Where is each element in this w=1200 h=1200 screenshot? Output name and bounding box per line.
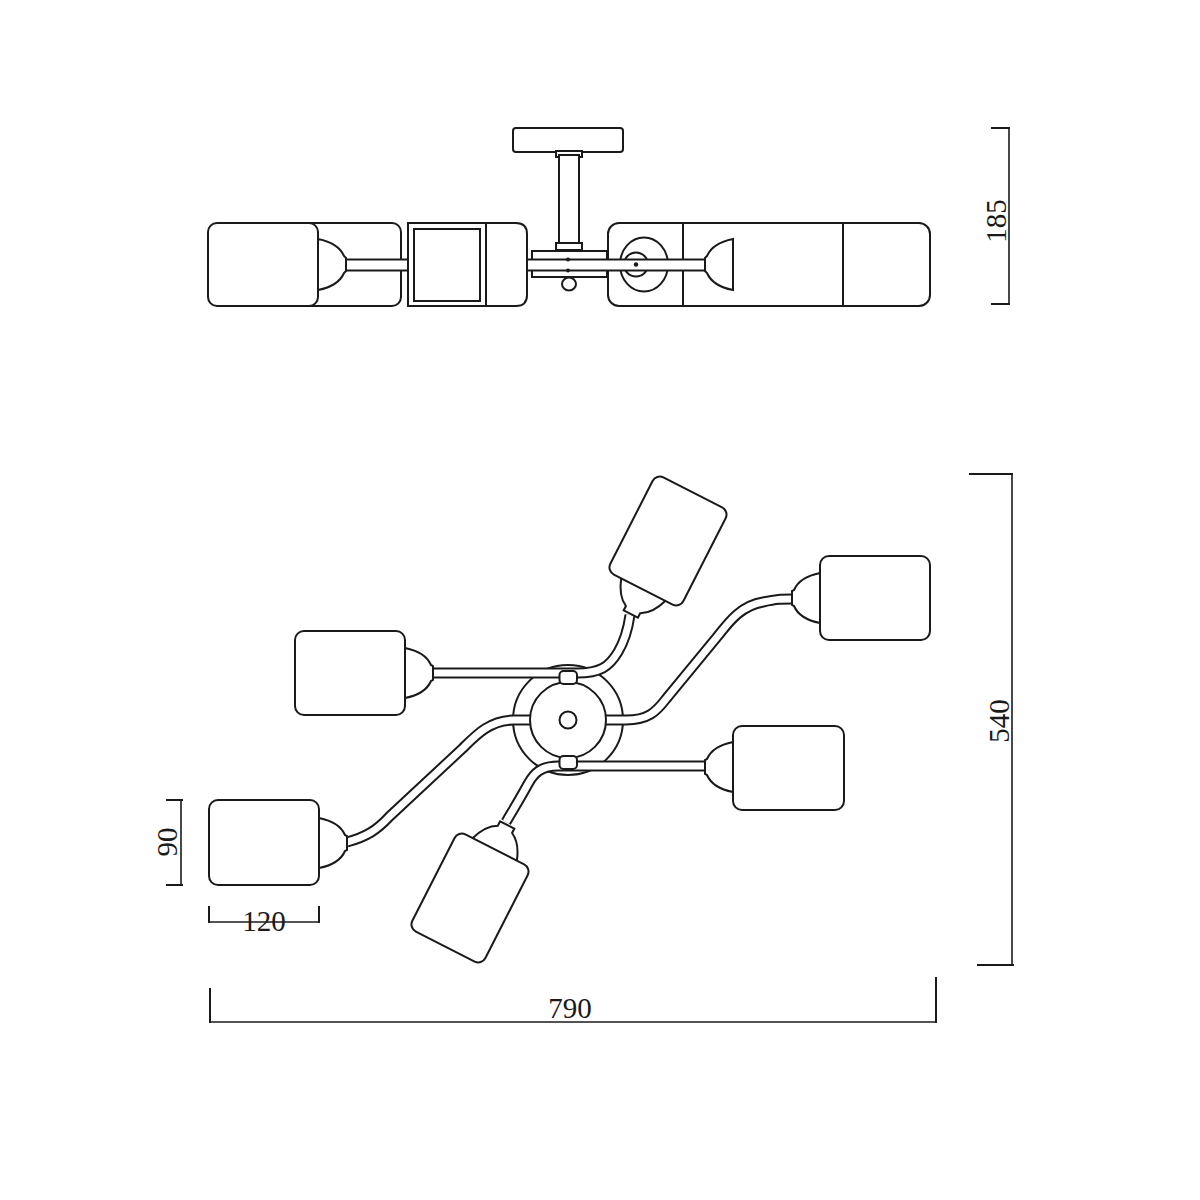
side-elevation-view: 185	[208, 128, 1012, 306]
socket-bell	[705, 742, 733, 792]
hub-center-hole	[560, 712, 577, 729]
bolt-dot	[566, 269, 570, 273]
dimension-shade-width-120: 120	[209, 905, 319, 937]
stem	[559, 155, 579, 247]
shade-top-tilted	[594, 474, 729, 633]
dimension-height-185: 185	[980, 128, 1012, 304]
socket-bell	[319, 818, 347, 868]
dim-label-shade-depth: 90	[151, 828, 183, 857]
dimension-width-790: 790	[210, 977, 936, 1024]
dim-label-depth: 540	[983, 699, 1015, 743]
shade-side-square-inner	[414, 229, 480, 301]
arm-tube-upper	[433, 615, 630, 673]
shade-left-middle	[295, 631, 405, 715]
stem-collar	[556, 243, 582, 250]
plan-view: 540 790 120 90	[151, 474, 1015, 1024]
shade-lower-right	[733, 726, 844, 810]
dimension-shade-depth-90: 90	[151, 800, 183, 885]
shade-side-left-front	[208, 223, 318, 306]
socket-center-dot	[634, 262, 638, 266]
bolt-dot	[566, 258, 570, 262]
dim-label-shade-width: 120	[242, 905, 286, 937]
dim-label-height: 185	[980, 199, 1012, 243]
hub-clamp-top	[560, 671, 578, 684]
shade-upper-right	[820, 556, 930, 640]
shade-bottom-tilted	[409, 806, 544, 965]
socket-bell	[792, 573, 820, 623]
drawing-canvas: 185	[0, 0, 1200, 1200]
technical-drawing: 185	[0, 0, 1200, 1200]
shade-lower-left	[209, 800, 319, 885]
dim-label-width: 790	[548, 992, 592, 1024]
finial	[562, 278, 576, 291]
hub-clamp-bottom	[560, 756, 578, 769]
ceiling-canopy	[513, 128, 623, 152]
socket-bell	[405, 648, 433, 698]
arm-tube-lower	[506, 766, 705, 822]
dimension-depth-540: 540	[969, 474, 1015, 965]
